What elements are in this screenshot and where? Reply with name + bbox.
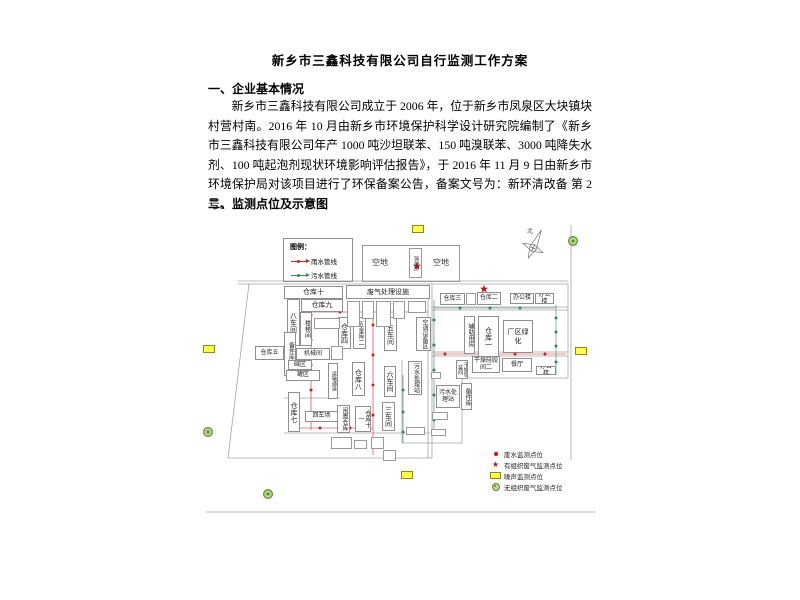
room-box: 干燥硅胶间二 bbox=[472, 356, 500, 373]
room-box: 运输通道 bbox=[328, 363, 338, 399]
sewage-flow-marker bbox=[402, 431, 405, 434]
structure-line bbox=[228, 284, 249, 458]
pipe-legend-title: 图例： bbox=[290, 242, 352, 252]
sewage-flow-marker bbox=[519, 307, 522, 310]
room-box: 罐区 bbox=[286, 370, 320, 381]
small-room-box bbox=[354, 440, 367, 449]
wastewater-point-marker bbox=[310, 389, 313, 392]
sewage-flow-marker bbox=[555, 345, 558, 348]
sewage-flow-marker bbox=[459, 307, 462, 310]
monitoring-marker-legend: 废水监测点位★有组织废气监测点位噪声监测点位无组织废气监测点位 bbox=[489, 448, 563, 492]
room-box: 碱区 bbox=[288, 360, 312, 370]
small-room-box bbox=[432, 412, 448, 420]
room-box: 仓库八 bbox=[352, 362, 365, 396]
sewage-flow-marker bbox=[489, 307, 492, 310]
small-room-box bbox=[314, 318, 340, 329]
room-box: 空调设备区 bbox=[416, 317, 431, 351]
small-room-box bbox=[408, 301, 426, 313]
pipe-legend-box: 图例： 雨水管线污水管线 bbox=[283, 238, 353, 282]
small-room-box bbox=[383, 450, 396, 461]
sewage-flow-marker bbox=[433, 344, 436, 347]
monitoring-site-diagram: 北 图例： 雨水管线污水管线 空地 空地 锅炉房 仓库十仓库九八车间楼梯间备件库… bbox=[0, 0, 800, 600]
room-box: 六车间 bbox=[384, 366, 396, 397]
room-box: 仓库二 bbox=[477, 292, 501, 305]
room-box: 仓库五 bbox=[255, 346, 284, 360]
sewage-flow-marker bbox=[402, 389, 405, 392]
open-land-left-label: 空地 bbox=[372, 257, 388, 268]
pipe-legend-item: 污水管线 bbox=[291, 270, 352, 280]
sewage-flow-marker bbox=[555, 317, 558, 320]
room-box: 仓库十 bbox=[284, 286, 343, 299]
room-box: 辅助用房 bbox=[464, 316, 475, 354]
room-box: 备件库 bbox=[461, 383, 472, 410]
room-box: 干燥包装间 bbox=[456, 360, 468, 379]
room-box: 办公楼 bbox=[510, 293, 534, 304]
wastewater-point-marker bbox=[372, 414, 375, 417]
wastewater-point-marker bbox=[544, 353, 547, 356]
room-box: 闲置仓库 bbox=[337, 405, 350, 433]
small-room-box bbox=[331, 346, 343, 360]
unorganized-gas-point-center bbox=[267, 493, 270, 496]
noise-point-marker bbox=[413, 226, 424, 233]
room-box: 三车间 bbox=[382, 402, 395, 431]
marker-legend-label: 废水监测点位 bbox=[504, 449, 543, 459]
noise-point-marker bbox=[576, 348, 587, 355]
compass-rose-icon bbox=[528, 247, 536, 258]
room-box: 机械间 bbox=[296, 348, 330, 360]
marker-legend-label: 噪声监测点位 bbox=[504, 471, 543, 481]
small-room-box bbox=[393, 301, 405, 319]
small-room-box bbox=[371, 437, 384, 449]
pipeline-arrow-icon bbox=[291, 275, 307, 276]
dot-legend-icon bbox=[489, 452, 502, 456]
diagram-drawing-layer: 北 bbox=[0, 0, 800, 600]
small-room-box bbox=[376, 301, 391, 327]
wastewater-point-marker bbox=[444, 353, 447, 356]
unorganized-gas-point-center bbox=[572, 240, 575, 243]
pipe-legend-item: 雨水管线 bbox=[291, 256, 352, 266]
room-box: 污水处理站 bbox=[436, 385, 460, 408]
marker-legend-item: 废水监测点位 bbox=[489, 448, 563, 459]
room-box: 污水处理站 bbox=[408, 361, 422, 395]
boiler-room-box: 锅炉房 bbox=[409, 248, 422, 278]
wastewater-point-marker bbox=[372, 324, 375, 327]
pipe-legend-rows: 雨水管线污水管线 bbox=[284, 256, 352, 280]
noise-point-marker bbox=[402, 472, 413, 479]
pipe-legend-label: 污水管线 bbox=[311, 270, 337, 280]
small-room-box bbox=[431, 429, 446, 436]
small-room-box bbox=[331, 437, 352, 449]
compass-north-label: 北 bbox=[527, 227, 533, 235]
noise-point-marker bbox=[204, 346, 215, 353]
small-room-box bbox=[347, 301, 360, 327]
small-room-box bbox=[431, 372, 441, 379]
marker-legend-item: 噪声监测点位 bbox=[489, 470, 563, 481]
marker-legend-item: 无组织废气监测点位 bbox=[489, 481, 563, 492]
open-land-right-label: 空地 bbox=[433, 257, 449, 268]
sewage-flow-marker bbox=[402, 411, 405, 414]
room-box: 办公楼 bbox=[536, 366, 556, 375]
room-box: 餐厅 bbox=[502, 358, 532, 372]
room-box: 仓库七 bbox=[288, 392, 300, 432]
star-legend-icon: ★ bbox=[489, 461, 502, 469]
unorganized-gas-point-center bbox=[207, 431, 210, 434]
pipeline-arrow-icon bbox=[291, 261, 307, 262]
room-box: 废气处理设施 bbox=[346, 285, 430, 299]
rect-legend-icon bbox=[489, 472, 502, 479]
wastewater-point-marker bbox=[372, 354, 375, 357]
marker-legend-label: 无组织废气监测点位 bbox=[504, 482, 563, 492]
open-land-block: 空地 空地 锅炉房 bbox=[362, 245, 460, 282]
room-box: 仓库十一 bbox=[355, 406, 371, 432]
marker-legend-item: ★有组织废气监测点位 bbox=[489, 459, 563, 470]
room-box: 仓库一 bbox=[478, 316, 499, 358]
room-box: 仓库三 bbox=[440, 293, 465, 305]
compass-rose-icon bbox=[523, 243, 534, 251]
marker-legend-label: 有组织废气监测点位 bbox=[504, 460, 563, 470]
room-box: 仓库九 bbox=[301, 299, 343, 312]
circle-legend-icon bbox=[489, 483, 502, 491]
room-box: 回车场 bbox=[305, 411, 338, 422]
wastewater-point-marker bbox=[372, 384, 375, 387]
small-room-box bbox=[362, 301, 374, 319]
room-box: 办公楼 bbox=[535, 293, 554, 304]
room-box: 厂区绿化 bbox=[503, 320, 533, 353]
wastewater-point-marker bbox=[319, 427, 322, 430]
sewage-flow-marker bbox=[555, 361, 558, 364]
pipe-legend-label: 雨水管线 bbox=[311, 256, 337, 266]
small-room-box bbox=[406, 427, 425, 435]
room-box: 楼梯间 bbox=[300, 312, 312, 346]
small-room-box bbox=[466, 293, 476, 305]
sewage-flow-marker bbox=[555, 331, 558, 334]
sewage-flow-marker bbox=[433, 319, 436, 322]
